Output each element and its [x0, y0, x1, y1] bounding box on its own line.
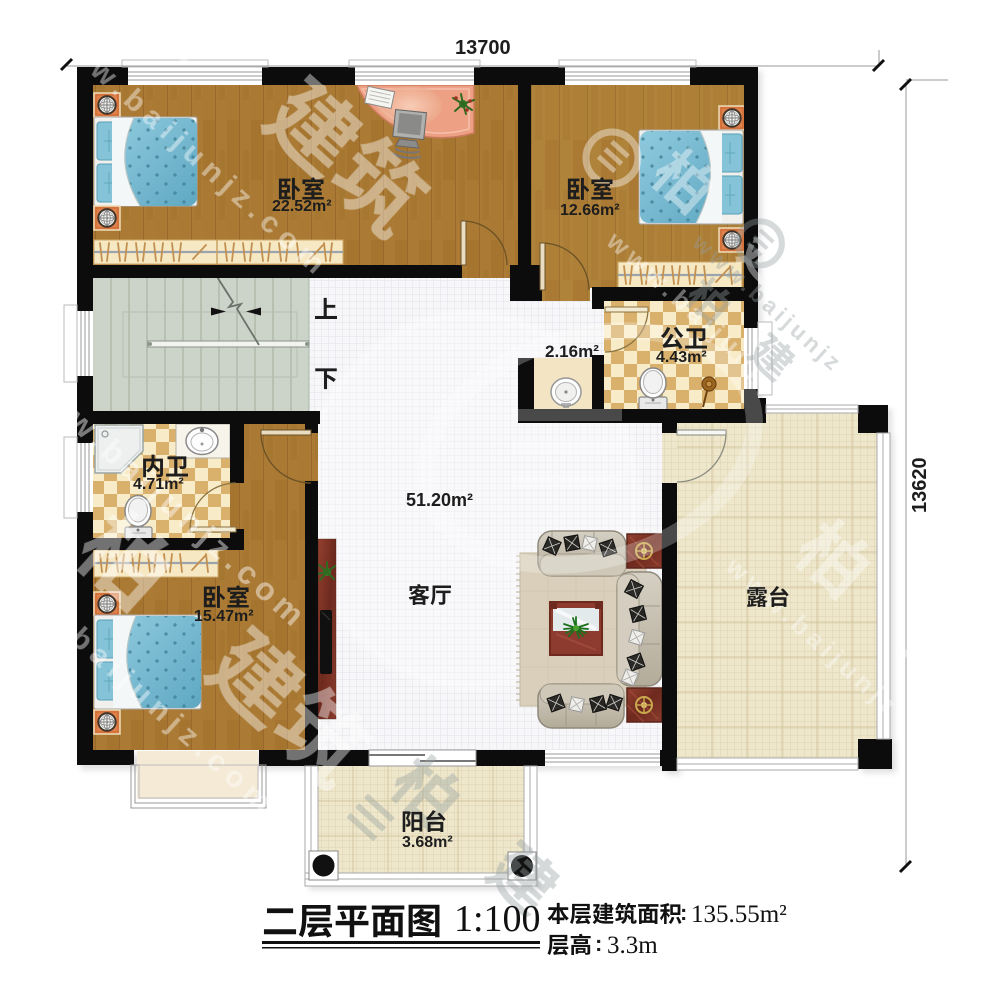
svg-text:3.68m²: 3.68m² [402, 834, 453, 851]
svg-text:13700: 13700 [455, 37, 511, 59]
svg-text:135.55m²: 135.55m² [691, 901, 787, 928]
svg-text:4.71m²: 4.71m² [133, 476, 184, 493]
svg-text::: : [680, 900, 687, 925]
svg-text:12.66m²: 12.66m² [560, 202, 620, 219]
svg-text:51.20m²: 51.20m² [406, 490, 473, 510]
svg-text:15.47m²: 15.47m² [194, 608, 254, 625]
svg-text:4.43m²: 4.43m² [656, 349, 707, 366]
svg-text:22.52m²: 22.52m² [272, 198, 332, 215]
svg-text:1:100: 1:100 [454, 898, 541, 940]
svg-text:3.3m: 3.3m [607, 932, 658, 959]
svg-text:13620: 13620 [909, 457, 931, 513]
svg-text::: : [595, 931, 602, 956]
svg-text:2.16m²: 2.16m² [545, 342, 599, 361]
